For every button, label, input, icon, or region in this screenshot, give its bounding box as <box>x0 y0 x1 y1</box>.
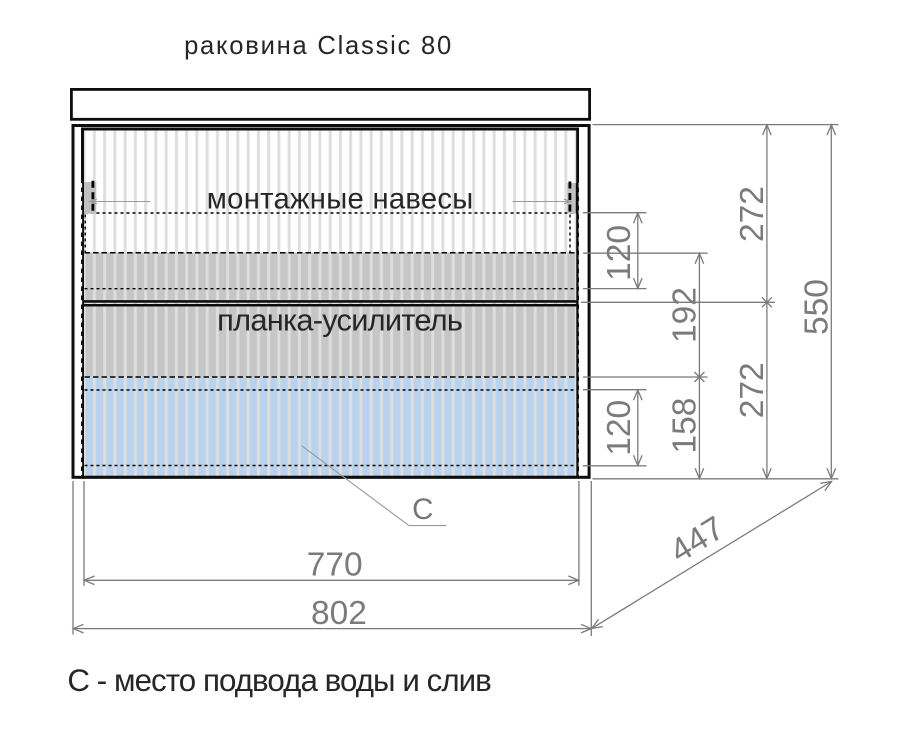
svg-text:C: C <box>412 493 433 526</box>
svg-text:120: 120 <box>601 225 638 281</box>
svg-text:272: 272 <box>734 186 771 242</box>
svg-text:планка-усилитель: планка-усилитель <box>217 302 462 337</box>
svg-text:120: 120 <box>601 400 638 456</box>
svg-text:802: 802 <box>311 595 367 632</box>
svg-text:монтажные навесы: монтажные навесы <box>207 184 474 216</box>
svg-text:272: 272 <box>734 362 771 418</box>
svg-text:192: 192 <box>667 287 704 343</box>
svg-text:770: 770 <box>307 546 363 583</box>
svg-text:С - место подвода воды и слив: С - место подвода воды и слив <box>67 663 491 698</box>
svg-text:550: 550 <box>799 279 836 335</box>
svg-text:раковина Classic 80: раковина Classic 80 <box>184 32 453 60</box>
svg-text:158: 158 <box>667 398 704 454</box>
